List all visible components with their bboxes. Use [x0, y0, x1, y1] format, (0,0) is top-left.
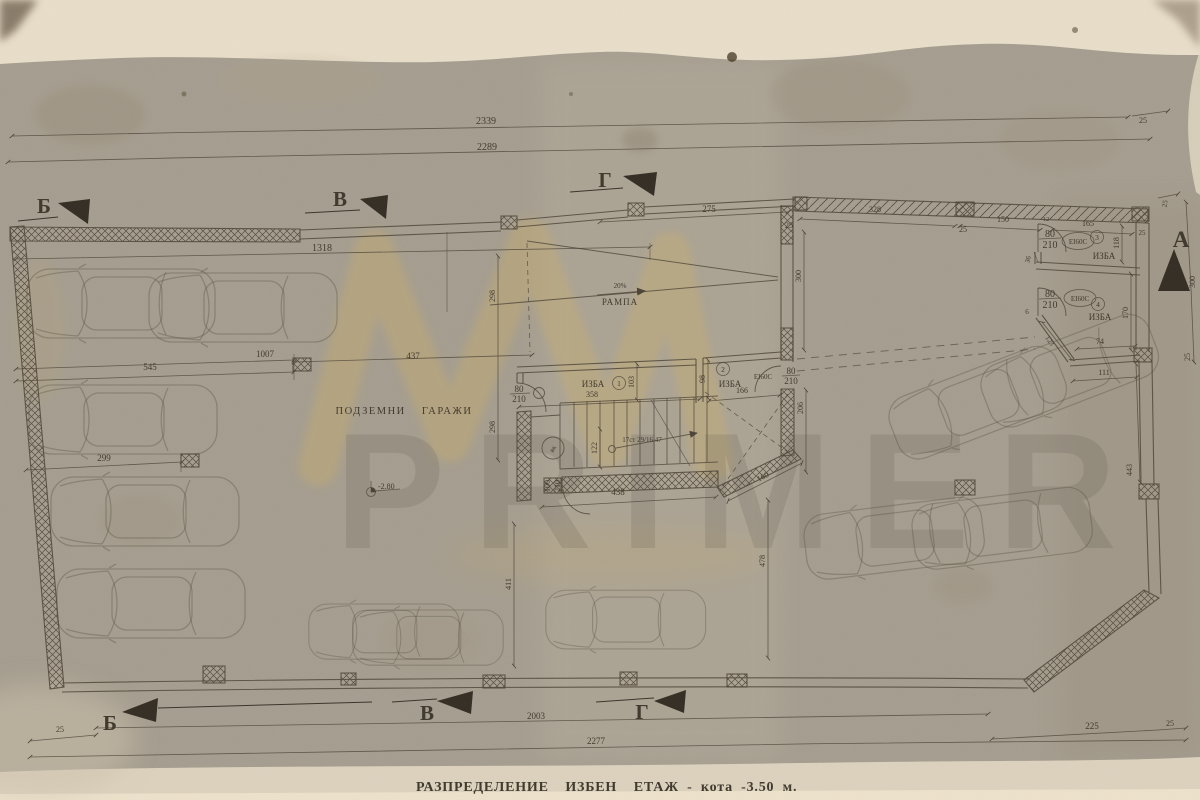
scanned-floor-plan-page: PRIMER — [0, 0, 1200, 800]
basement-floor-plan-drawing: PRIMER — [0, 0, 1200, 800]
photo-grain-overlay — [0, 0, 1200, 800]
